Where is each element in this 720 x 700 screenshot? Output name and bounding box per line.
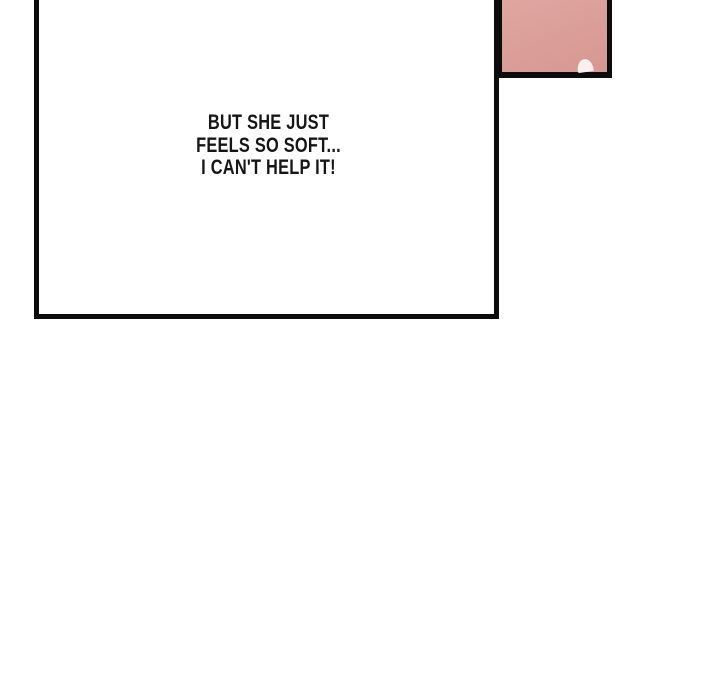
highlight-dome-icon [576, 58, 594, 73]
speech-line-1: BUT SHE JUST [91, 112, 446, 135]
speech-bubble-panel: BUT SHE JUST FEELS SO SOFT... I CAN'T HE… [34, 0, 499, 319]
speech-text: BUT SHE JUST FEELS SO SOFT... I CAN'T HE… [91, 112, 446, 180]
webtoon-page: BUT SHE JUST FEELS SO SOFT... I CAN'T HE… [0, 0, 720, 700]
speech-line-2: FEELS SO SOFT... [91, 135, 446, 158]
speech-line-3: I CAN'T HELP IT! [91, 157, 446, 180]
corner-art-panel [497, 0, 612, 78]
